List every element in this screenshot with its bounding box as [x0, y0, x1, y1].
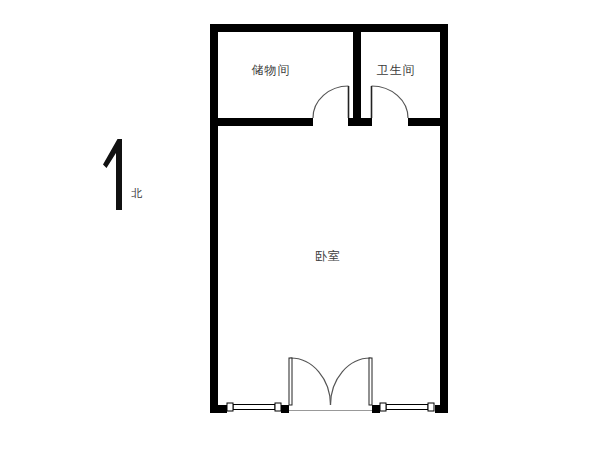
- wall-bottom-seg3: [372, 405, 380, 413]
- wall-left: [210, 24, 218, 413]
- wall-top: [210, 24, 448, 32]
- room-label-bedroom: 卧室: [315, 248, 341, 265]
- wall-bottom-seg4: [435, 405, 448, 413]
- bathroom-door-arc: [372, 86, 409, 118]
- north-label: 北: [132, 186, 143, 201]
- window-right: [380, 403, 434, 411]
- floorplan-canvas: [0, 0, 600, 450]
- window-right-cap-a: [380, 403, 386, 411]
- window-left-cap-b: [275, 403, 281, 411]
- window-right-cap-b: [428, 403, 434, 411]
- outer-walls: [210, 24, 448, 413]
- room-label-storage: 储物间: [252, 62, 291, 79]
- bathroom-door: [372, 86, 409, 118]
- wall-bottom-seg1: [210, 405, 227, 413]
- window-left-body: [233, 405, 275, 410]
- storage-door-arc: [313, 86, 349, 118]
- wall-interior-right: [408, 118, 440, 126]
- wall-bottom-seg2: [281, 405, 289, 413]
- north-arrow-icon: [103, 139, 122, 210]
- entry-door-arc-left: [291, 358, 331, 405]
- room-label-bathroom: 卫生间: [377, 62, 416, 79]
- entry-door-leaf-right: [369, 358, 372, 405]
- entry-door-arc-right: [331, 358, 371, 405]
- storage-door: [313, 86, 349, 118]
- entry-door-leaf-left: [289, 358, 292, 405]
- entry-double-door: [289, 358, 372, 411]
- wall-storage-bathroom-divider: [353, 32, 361, 126]
- floorplan-page: 储物间 卫生间 卧室 北: [0, 0, 600, 450]
- wall-interior-left: [218, 118, 313, 126]
- interior-walls: [218, 32, 440, 126]
- window-left-cap-a: [227, 403, 233, 411]
- wall-right: [440, 24, 448, 413]
- window-left: [227, 403, 281, 411]
- window-right-body: [386, 405, 428, 410]
